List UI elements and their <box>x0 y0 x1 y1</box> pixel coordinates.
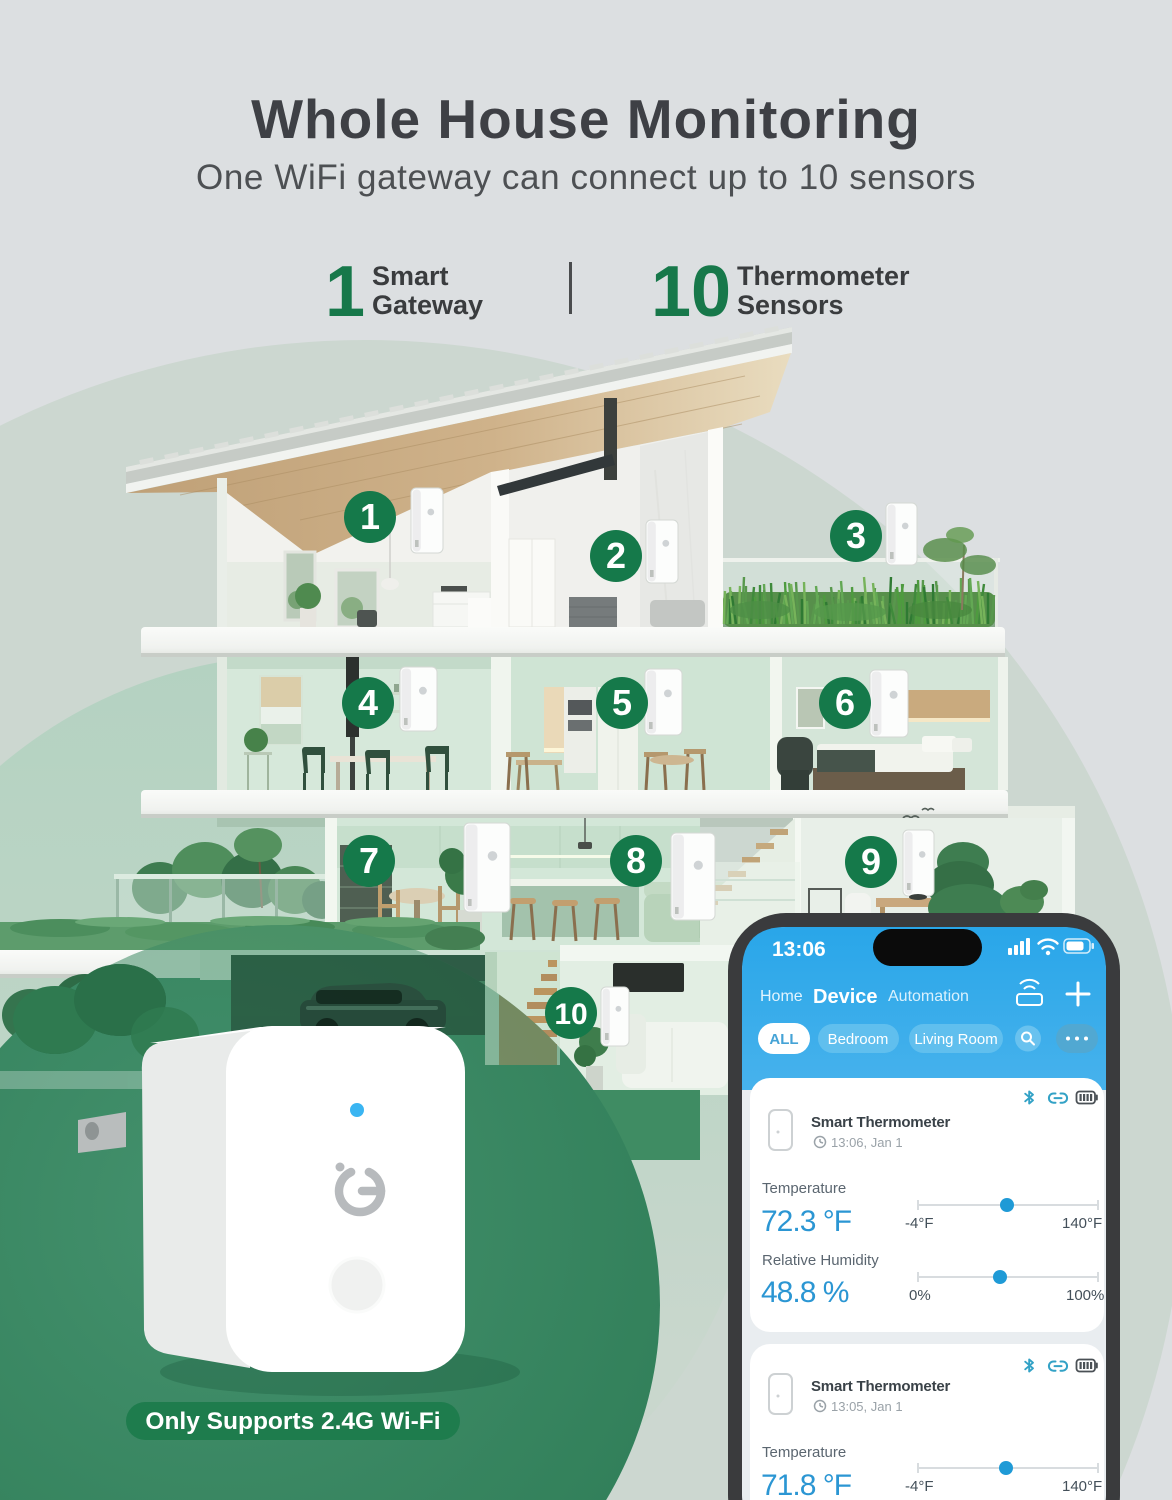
svg-text:Automation: Automation <box>888 988 969 1005</box>
svg-text:Thermometer: Thermometer <box>737 261 910 291</box>
svg-text:2: 2 <box>606 535 626 576</box>
svg-text:-4°F: -4°F <box>905 1215 934 1232</box>
svg-text:Whole House Monitoring: Whole House Monitoring <box>251 88 921 150</box>
svg-text:1: 1 <box>360 496 380 537</box>
svg-text:3: 3 <box>846 515 866 556</box>
svg-text:140°F: 140°F <box>1062 1478 1102 1495</box>
svg-text:Smart: Smart <box>372 261 449 291</box>
svg-text:Smart Thermometer: Smart Thermometer <box>811 1378 951 1395</box>
svg-text:Relative Humidity: Relative Humidity <box>762 1252 879 1269</box>
svg-text:0%: 0% <box>909 1287 931 1304</box>
svg-text:ALL: ALL <box>769 1031 798 1048</box>
svg-text:13:05, Jan 1: 13:05, Jan 1 <box>831 1399 903 1414</box>
svg-text:10: 10 <box>554 998 587 1031</box>
svg-text:Temperature: Temperature <box>762 1180 846 1197</box>
svg-text:1: 1 <box>325 252 365 332</box>
svg-text:-4°F: -4°F <box>905 1478 934 1495</box>
svg-text:100%: 100% <box>1066 1287 1104 1304</box>
svg-text:10: 10 <box>651 252 731 332</box>
svg-text:Bedroom: Bedroom <box>828 1031 889 1048</box>
svg-text:Only Supports 2.4G Wi-Fi: Only Supports 2.4G Wi-Fi <box>145 1408 440 1435</box>
svg-text:Temperature: Temperature <box>762 1444 846 1461</box>
svg-text:One WiFi gateway can connect u: One WiFi gateway can connect up to 10 se… <box>196 158 976 197</box>
svg-text:9: 9 <box>861 841 881 882</box>
svg-text:Home: Home <box>760 988 803 1005</box>
svg-text:71.8 °F: 71.8 °F <box>761 1469 852 1500</box>
svg-text:140°F: 140°F <box>1062 1215 1102 1232</box>
svg-text:7: 7 <box>359 840 379 881</box>
svg-text:Gateway: Gateway <box>372 290 483 320</box>
svg-text:Smart Thermometer: Smart Thermometer <box>811 1114 951 1131</box>
svg-text:48.8 %: 48.8 % <box>761 1276 849 1309</box>
svg-text:4: 4 <box>358 682 378 723</box>
svg-text:13:06, Jan 1: 13:06, Jan 1 <box>831 1135 903 1150</box>
svg-text:72.3 °F: 72.3 °F <box>761 1205 852 1238</box>
svg-text:Device: Device <box>813 986 878 1008</box>
svg-text:Sensors: Sensors <box>737 290 844 320</box>
svg-text:5: 5 <box>612 682 632 723</box>
svg-text:6: 6 <box>835 682 855 723</box>
svg-text:Living Room: Living Room <box>914 1031 997 1048</box>
svg-text:13:06: 13:06 <box>772 938 826 961</box>
svg-text:8: 8 <box>626 840 646 881</box>
